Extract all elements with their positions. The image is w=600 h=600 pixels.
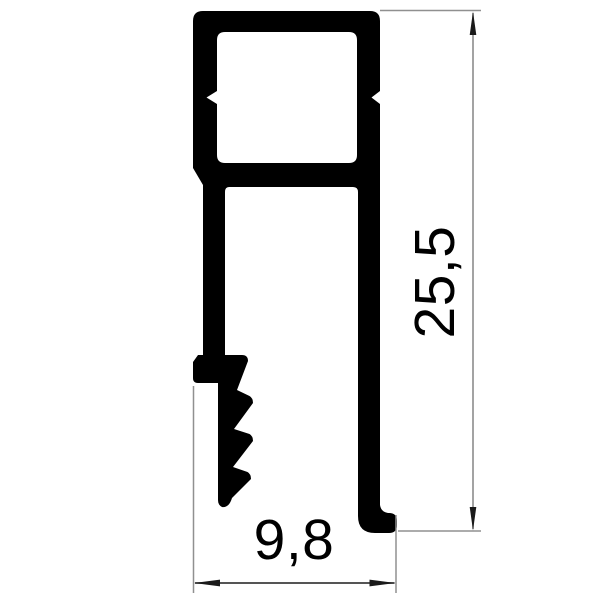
height-arrow-down-icon — [470, 507, 477, 531]
profile-drawing: 25,5 9,8 — [0, 0, 600, 600]
technical-drawing-canvas: 25,5 9,8 — [0, 0, 600, 600]
profile-shape — [193, 11, 397, 533]
height-dimension-label: 25,5 — [403, 226, 467, 339]
height-arrow-up-icon — [470, 12, 477, 36]
width-arrow-right-icon — [370, 580, 396, 587]
width-dimension-label: 9,8 — [254, 508, 335, 572]
width-arrow-left-icon — [194, 580, 220, 587]
